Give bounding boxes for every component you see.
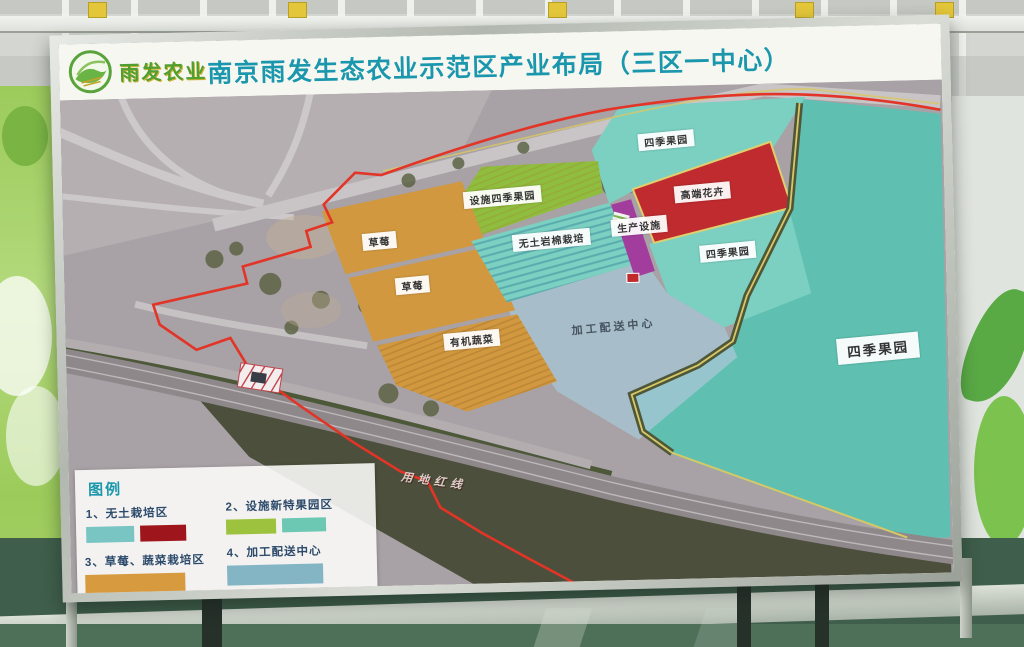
yufa-logo-icon [67, 48, 114, 95]
small-red-plot [627, 273, 639, 282]
sticky-trap-icon [288, 2, 307, 18]
map-label-caomei-1: 草莓 [362, 231, 397, 251]
green-floor [0, 624, 1024, 647]
legend-item-1: 1、无土栽培区 [86, 504, 187, 543]
logo-text: 雨发农业 [119, 55, 208, 86]
legend-swatch [86, 526, 134, 543]
legend-swatch [140, 525, 186, 542]
legend-item-2-label: 2、设施新特果园区 [225, 499, 333, 514]
legend-item-3-label: 3、草莓、蔬菜栽培区 [85, 554, 205, 569]
legend-item-4-label: 4、加工配送中心 [227, 545, 322, 559]
poster-leaf-shape [2, 106, 48, 166]
sticky-trap-icon [88, 2, 107, 18]
sign-face: 雨发农业 南京雨发生态农业示范区产业布局（三区一中心） [59, 24, 954, 594]
legend-swatch [282, 517, 326, 532]
sticky-trap-icon [795, 2, 814, 18]
legend-item-1-label: 1、无土栽培区 [86, 507, 169, 521]
sticky-trap-icon [548, 2, 567, 18]
sign-title: 南京雨发生态农业示范区产业布局（三区一中心） [207, 40, 791, 90]
poster-plant-shape [974, 396, 1024, 546]
legend-swatch [227, 563, 323, 585]
poster-plant-shape [953, 281, 1024, 412]
legend-title: 图例 [88, 478, 123, 500]
legend-swatch [85, 573, 185, 594]
legend-item-3: 3、草莓、蔬菜栽培区 [85, 551, 206, 593]
legend-item-4: 4、加工配送中心 [226, 542, 323, 585]
site-map: 草莓 草莓 有机蔬菜 设施四季果园 无土岩棉栽培 生产设施 高端花卉 四季果园 … [60, 80, 953, 594]
greenhouse-scene: 雨发农业 南京雨发生态农业示范区产业布局（三区一中心） [0, 0, 1024, 647]
legend-swatch [226, 518, 276, 534]
map-legend: 图例 1、无土栽培区 2、设施新特果园区 [75, 463, 378, 593]
legend-item-2: 2、设施新特果园区 [225, 496, 333, 535]
map-label-caomei-2: 草莓 [395, 275, 430, 295]
poster-cloud-shape [6, 386, 66, 486]
sign-board: 雨发农业 南京雨发生态农业示范区产业布局（三区一中心） [49, 14, 962, 602]
poster-cloud-shape [0, 276, 52, 396]
